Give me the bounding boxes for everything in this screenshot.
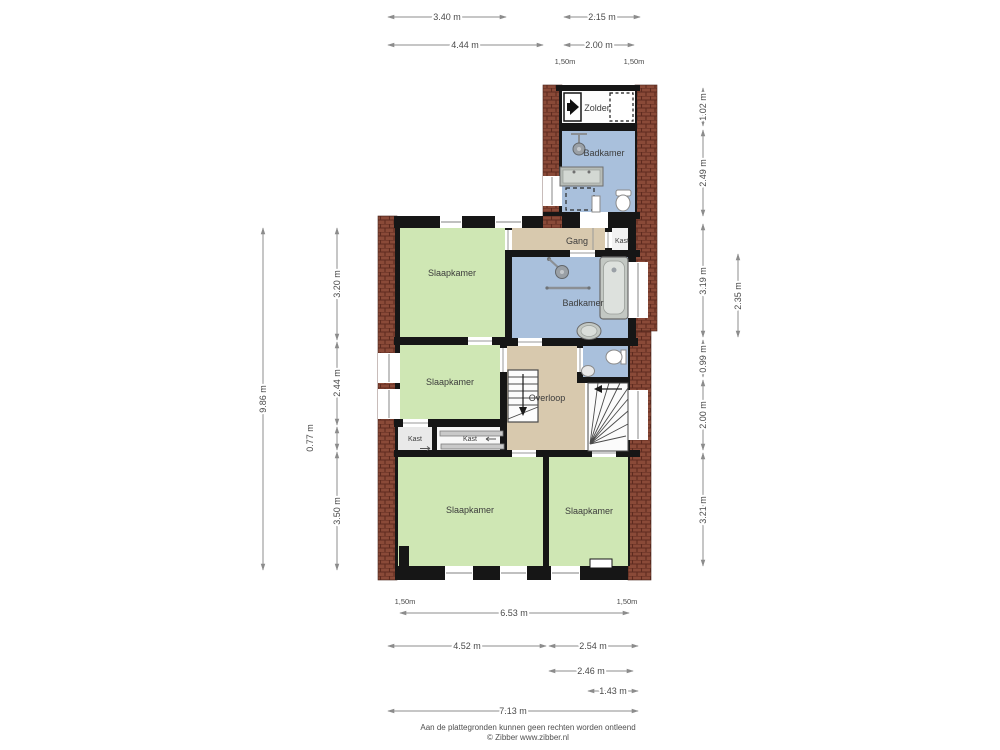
svg-text:3.21 m: 3.21 m <box>698 496 708 524</box>
label-gang: Gang <box>566 236 588 246</box>
dim-bottom-6-53: 6.53 m <box>400 608 629 618</box>
door-kast-gang <box>605 232 612 248</box>
footer: Aan de plattegronden kunnen geen rechten… <box>420 723 635 742</box>
door-overloop-slaapkamer-sw <box>512 450 536 457</box>
svg-text:2.54 m: 2.54 m <box>579 641 607 651</box>
wall-topwing-top <box>556 85 640 91</box>
dim-bottom-7-13: 7.13 m <box>388 706 638 716</box>
svg-text:2.49 m: 2.49 m <box>698 159 708 187</box>
svg-text:9.86 m: 9.86 m <box>258 385 268 413</box>
window-top-2 <box>495 216 522 228</box>
label-zolder: Zolder <box>584 103 610 113</box>
door-kast-left <box>403 419 428 427</box>
label-kast-left: Kast <box>408 436 422 443</box>
wall-bedroom-divider <box>543 457 549 568</box>
dim-bottom-150-right: 1,50m <box>617 597 638 606</box>
wall-toilet-bottom <box>577 377 630 383</box>
room-floor-gang <box>512 228 605 252</box>
floorplan-drawing: Zolder Badkamer Gang Kast Slaapkamer Bad… <box>0 0 1000 750</box>
dim-right-2-49: 2.49 m <box>698 130 708 216</box>
svg-text:2.00 m: 2.00 m <box>698 401 708 429</box>
label-slaapkamer-w: Slaapkamer <box>426 377 474 387</box>
svg-text:2.44 m: 2.44 m <box>332 369 342 397</box>
svg-text:2.35 m: 2.35 m <box>733 282 743 310</box>
label-kast-mid: Kast <box>463 436 477 443</box>
dim-top-2-00: 2.00 m <box>564 40 634 50</box>
label-kast-gang: Kast <box>615 238 629 245</box>
dim-top-2-15: 2.15 m <box>564 12 640 22</box>
label-overloop: Overloop <box>529 393 566 403</box>
staircase-winder <box>588 383 628 451</box>
bathtub-icon <box>600 257 628 319</box>
towel-rail-icon <box>545 286 590 289</box>
label-badkamer-main: Badkamer <box>562 298 603 308</box>
dim-top-4-44: 4.44 m <box>388 40 543 50</box>
dim-left-3-50: 3.50 m <box>332 452 342 570</box>
window-stairwell-right <box>628 390 648 440</box>
svg-text:3.20 m: 3.20 m <box>332 270 342 298</box>
window-bottom-1 <box>445 566 473 580</box>
toilet-wc-icon <box>606 350 626 364</box>
windowsill-se <box>590 559 612 568</box>
dim-bottom-2-54: 2.54 m <box>549 641 638 651</box>
svg-text:0.99 m: 0.99 m <box>698 345 708 373</box>
svg-text:1.02 m: 1.02 m <box>698 93 708 121</box>
floorplan-page: Zolder Badkamer Gang Kast Slaapkamer Bad… <box>0 0 1000 750</box>
dim-right-0-99: 0.99 m <box>698 340 708 377</box>
label-slaapkamer-se: Slaapkamer <box>565 506 613 516</box>
dim-left-2-44: 2.44 m <box>332 342 342 425</box>
footer-disclaimer: Aan de plattegronden kunnen geen rechten… <box>420 723 635 732</box>
label-slaapkamer-nw: Slaapkamer <box>428 268 476 278</box>
window-left-1 <box>378 353 400 383</box>
svg-text:2.46 m: 2.46 m <box>577 666 605 676</box>
window-top-1 <box>440 216 462 228</box>
dim-left-9-86: 9.86 m <box>258 228 268 570</box>
svg-text:3.40 m: 3.40 m <box>433 12 461 22</box>
door-overloop-slaapkamer-w <box>500 348 507 372</box>
door-gang-slaapkamer-nw <box>505 230 512 250</box>
radiator-top-icon <box>592 196 600 212</box>
window-topwing-left <box>543 176 562 206</box>
window-left-2 <box>378 389 400 419</box>
dim-bottom-150-left: 1,50m <box>395 597 416 606</box>
dim-top-3-40: 3.40 m <box>388 12 506 22</box>
svg-text:4.44 m: 4.44 m <box>451 40 479 50</box>
zolder-dashed-area <box>610 93 633 121</box>
svg-text:4.52 m: 4.52 m <box>453 641 481 651</box>
window-bottom-2 <box>500 566 527 580</box>
label-slaapkamer-sw: Slaapkamer <box>446 505 494 515</box>
svg-text:2.15 m: 2.15 m <box>588 12 616 22</box>
dim-bottom-1-43: 1.43 m <box>588 686 638 696</box>
footer-copyright: © Zibber www.zibber.nl <box>487 733 569 742</box>
svg-text:7.13 m: 7.13 m <box>499 706 527 716</box>
dim-right-3-19: 3.19 m <box>698 224 708 337</box>
label-badkamer-top: Badkamer <box>583 148 624 158</box>
dim-left-3-20: 3.20 m <box>332 228 342 340</box>
dim-top-150-left: 1,50m <box>555 57 576 66</box>
corner-sink-icon <box>582 366 595 377</box>
svg-text:0.77 m: 0.77 m <box>305 424 315 452</box>
dim-right-2-00: 2.00 m <box>698 380 708 450</box>
svg-text:2.00 m: 2.00 m <box>585 40 613 50</box>
window-bottom-3 <box>551 566 580 580</box>
svg-text:6.53 m: 6.53 m <box>500 608 528 618</box>
svg-text:3.19 m: 3.19 m <box>698 267 708 295</box>
loft-hatch-icon <box>564 93 581 121</box>
dim-left-0-77: 0.77 m <box>305 424 337 452</box>
dim-bottom-4-52: 4.52 m <box>388 641 546 651</box>
door-nw-w <box>468 337 492 345</box>
sink-main-icon <box>577 323 601 340</box>
dim-right-2-35: 2.35 m <box>733 254 743 337</box>
dim-bottom-2-46: 2.46 m <box>549 666 633 676</box>
toilet-top-icon <box>616 190 631 211</box>
dim-right-1-02: 1.02 m <box>698 88 708 126</box>
svg-text:3.50 m: 3.50 m <box>332 497 342 525</box>
wall-chimney-block <box>399 546 409 567</box>
door-badkamer-overloop <box>518 338 542 346</box>
bathtub-drain <box>612 268 617 273</box>
dim-right-3-21: 3.21 m <box>698 453 708 566</box>
window-badkamer-right <box>628 262 648 318</box>
wall-zolder-badkamer <box>562 123 635 131</box>
svg-text:1.43 m: 1.43 m <box>599 686 627 696</box>
brick-corner-gang <box>543 216 562 228</box>
washstand-top-icon <box>560 167 603 186</box>
room-floor-slaapkamer-nw <box>400 228 505 338</box>
dim-top-150-right: 1,50m <box>624 57 645 66</box>
door-gang-badkamer <box>570 250 595 257</box>
